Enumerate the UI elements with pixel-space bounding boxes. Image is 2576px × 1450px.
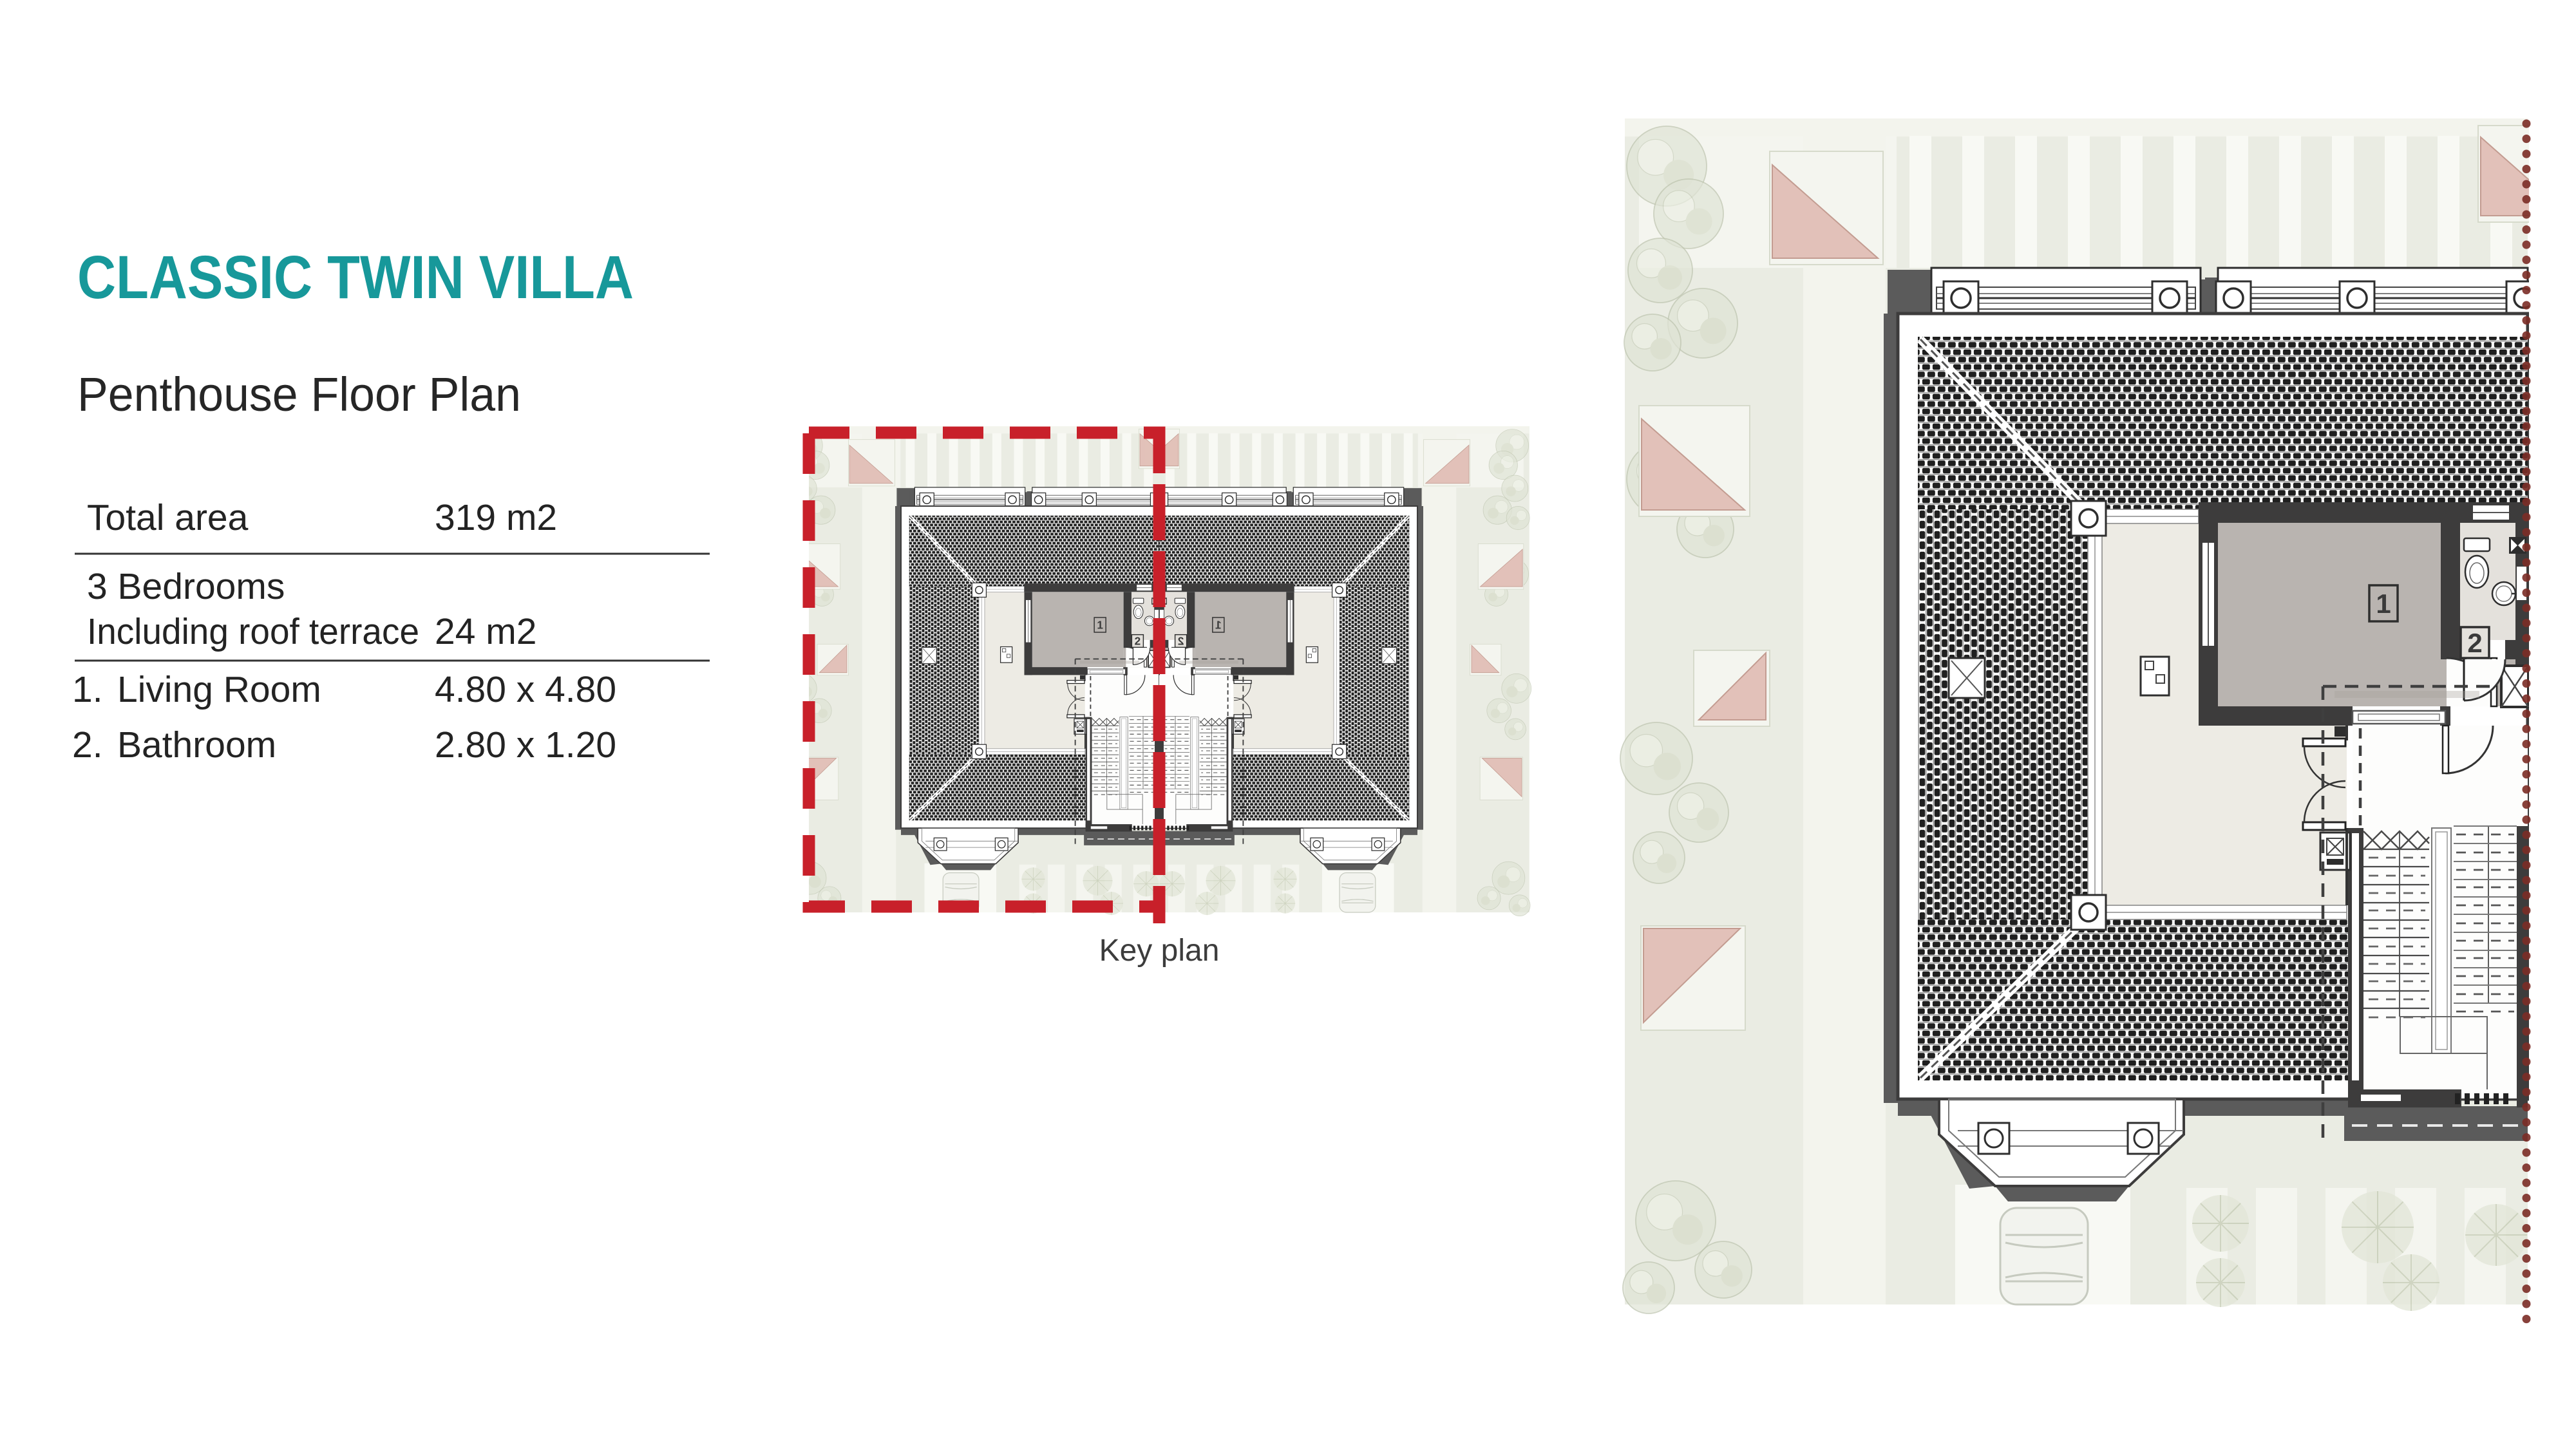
svg-text:4.80 x 4.80: 4.80 x 4.80	[435, 669, 616, 710]
svg-text:Living Room: Living Room	[117, 669, 321, 710]
svg-text:Penthouse Floor Plan: Penthouse Floor Plan	[77, 368, 521, 421]
svg-text:319 m2: 319 m2	[435, 497, 557, 538]
svg-text:CLASSIC TWIN VILLA: CLASSIC TWIN VILLA	[77, 243, 634, 312]
svg-text:Bathroom: Bathroom	[117, 724, 276, 766]
svg-text:3 Bedrooms: 3 Bedrooms	[87, 566, 285, 607]
svg-text:Total area: Total area	[87, 497, 249, 538]
svg-text:24 m2: 24 m2	[435, 611, 536, 652]
svg-text:Key plan: Key plan	[1099, 934, 1220, 968]
svg-text:2.80 x 1.20: 2.80 x 1.20	[435, 724, 616, 766]
svg-text:2.: 2.	[72, 724, 103, 766]
svg-text:Including roof terrace: Including roof terrace	[87, 611, 419, 652]
svg-text:1.: 1.	[72, 669, 103, 710]
